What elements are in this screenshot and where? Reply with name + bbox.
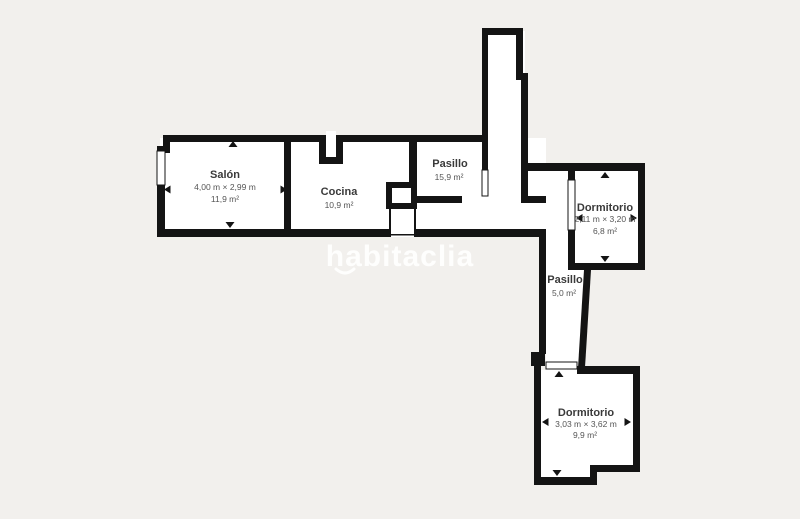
room-name-salon: Salón [210,169,240,181]
wall-bedroom2-right [633,366,640,472]
wall-salon-cocina-divider [284,135,291,232]
floor-plan-page: Salón 4,00 m × 2,99 m 11,9 m² Cocina 10,… [0,0,800,519]
wall-corridor-right-upper [516,28,523,80]
room-area-bedroom1: 6,8 m² [593,226,617,236]
room-area-pasillo2: 5,0 m² [552,288,576,298]
wall-corridor-lstub [521,196,546,203]
window-salon [157,151,165,185]
wall-rightsection-top [528,163,645,171]
wall-cocina-pasillo-divider [409,135,417,183]
door-bedroom2 [546,362,577,369]
room-area-pasillo1: 15,9 m² [435,172,464,182]
room-dims-salon: 4,00 m × 2,99 m [194,182,256,192]
door-pasillo-corridor [482,170,488,196]
wall-pasillo-right-upper [482,142,488,170]
room-name-cocina: Cocina [321,186,359,198]
room-dims-bedroom1: 2,11 m × 3,20 m [574,214,635,224]
wall-bedroom2-bottom-right [590,465,640,472]
room-area-bedroom2: 9,9 m² [573,430,597,440]
room-name-pasillo1: Pasillo [432,158,468,170]
room-name-bedroom1: Dormitorio [577,202,634,214]
wall-hall2-left [539,233,546,354]
wall-stub-pasillo [414,196,462,203]
chimney-notch-bottom [319,157,343,164]
wall-bedroom1-left-bottom [568,230,575,270]
closet-interior [392,188,411,203]
entrance-jamb-left [389,207,391,231]
wall-bedroom1-bottom [568,263,645,270]
room-name-pasillo2: Pasillo [547,274,583,286]
room-area-salon: 11,9 m² [211,194,239,204]
chimney-notch-opening [326,131,336,158]
wall-corridor-left [482,28,488,142]
wall-corridor-right-lower [521,73,528,203]
room-name-bedroom2: Dormitorio [558,407,615,419]
wall-bedroom2-bottom-left [534,477,597,485]
wall-bedroom2-top [577,366,640,374]
entrance-gap [391,229,414,237]
wall-bedroom1-left-top [568,163,575,180]
watermark-text: habitaclia [326,240,474,273]
room-dims-bedroom2: 3,03 m × 3,62 m [555,419,617,429]
entrance-jamb-right [414,207,416,231]
room-area-cocina: 10,9 m² [325,200,354,210]
wall-hall2-step [531,352,545,366]
floor-plan-canvas: Salón 4,00 m × 2,99 m 11,9 m² Cocina 10,… [0,0,800,519]
watermark-logo: habitaclia [326,240,474,273]
wall-bottom-main [157,229,546,237]
wall-bedroom1-right [638,163,645,270]
wall-bedroom2-left [534,366,541,485]
entrance-door-leaf [391,234,414,236]
